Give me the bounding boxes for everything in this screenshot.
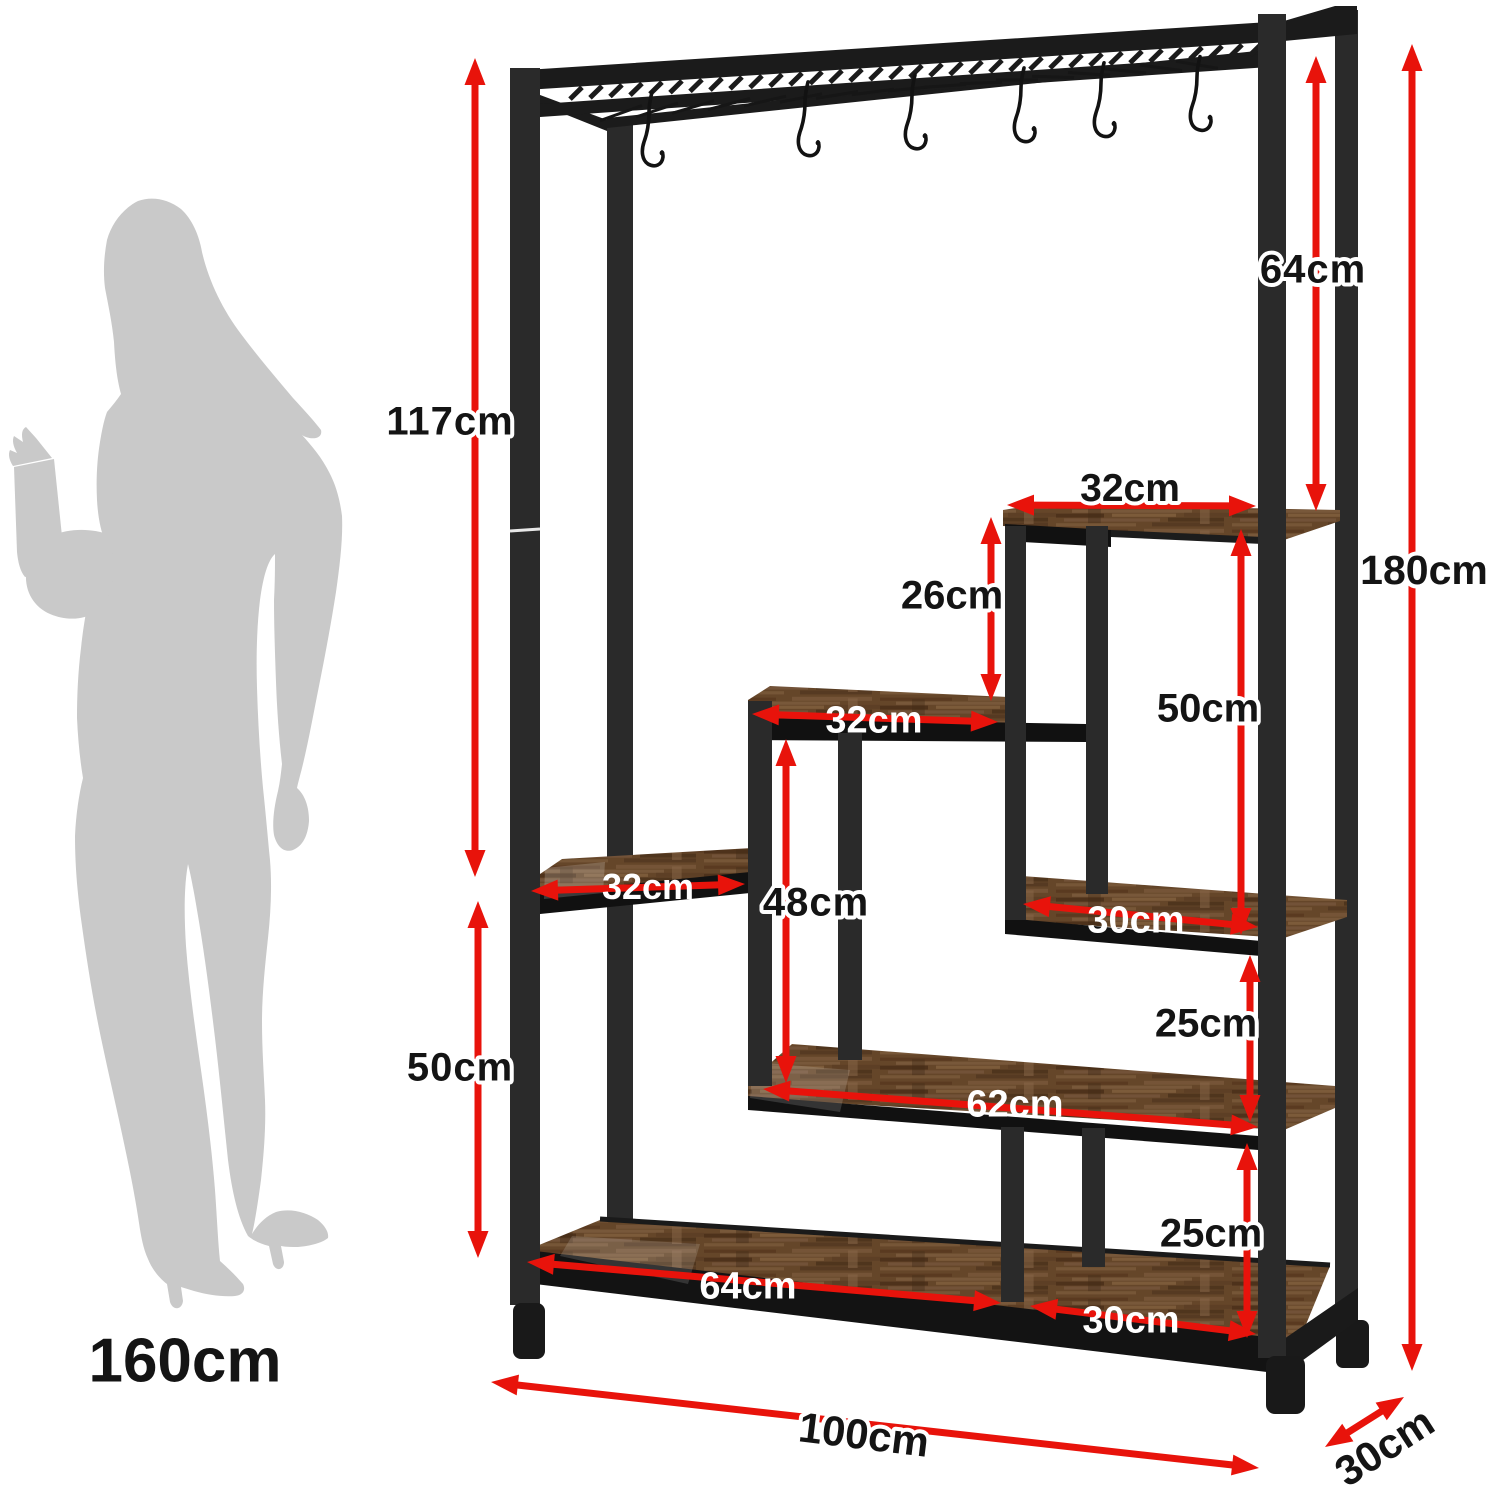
svg-text:25cm: 25cm bbox=[1160, 1211, 1262, 1255]
svg-text:62cm: 62cm bbox=[966, 1084, 1063, 1126]
svg-text:32cm: 32cm bbox=[1080, 467, 1180, 510]
svg-text:64cm: 64cm bbox=[1260, 247, 1366, 291]
svg-text:26cm: 26cm bbox=[901, 573, 1003, 617]
svg-text:48cm: 48cm bbox=[763, 880, 869, 924]
svg-text:50cm: 50cm bbox=[1157, 686, 1259, 730]
svg-text:50cm: 50cm bbox=[407, 1045, 513, 1089]
svg-text:160cm: 160cm bbox=[88, 1326, 281, 1395]
svg-text:30cm: 30cm bbox=[1082, 1300, 1179, 1342]
svg-text:64cm: 64cm bbox=[699, 1266, 796, 1308]
svg-text:117cm: 117cm bbox=[386, 399, 513, 443]
svg-text:32cm: 32cm bbox=[602, 866, 694, 907]
svg-text:25cm: 25cm bbox=[1155, 1001, 1257, 1045]
svg-text:30cm: 30cm bbox=[1087, 900, 1184, 942]
svg-text:32cm: 32cm bbox=[825, 700, 922, 742]
svg-text:180cm: 180cm bbox=[1360, 547, 1488, 593]
